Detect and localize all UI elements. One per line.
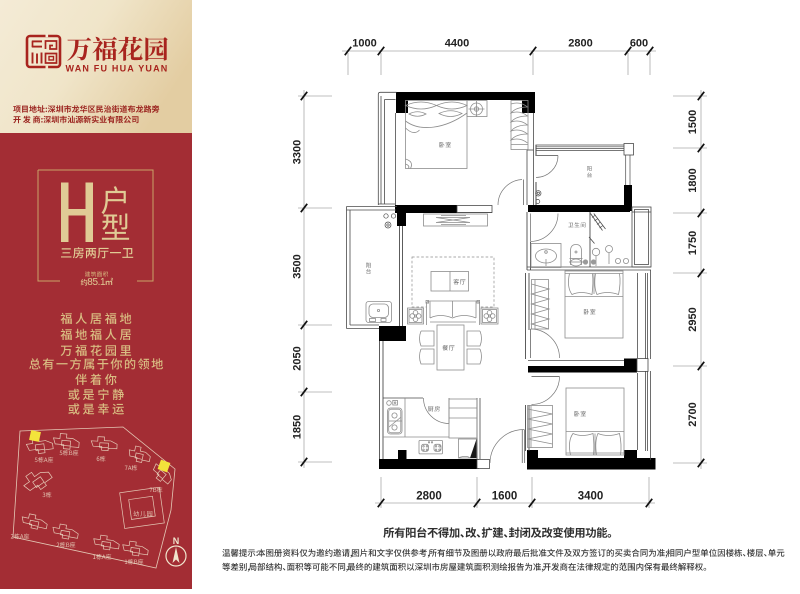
svg-text:WAN FU HUA YUAN: WAN FU HUA YUAN	[66, 64, 169, 74]
svg-text:3400: 3400	[578, 491, 604, 503]
svg-text:1850: 1850	[292, 415, 304, 439]
svg-text:2050: 2050	[292, 346, 304, 370]
svg-text:1800: 1800	[687, 168, 699, 192]
svg-text:1750: 1750	[687, 231, 699, 255]
svg-text:1500: 1500	[687, 110, 699, 134]
svg-text:600: 600	[630, 38, 648, 50]
svg-text:85.1: 85.1	[87, 277, 106, 288]
svg-text:1600: 1600	[492, 491, 518, 503]
svg-text:2800: 2800	[416, 491, 442, 503]
svg-text:2950: 2950	[687, 307, 699, 331]
svg-text:N: N	[173, 536, 180, 546]
svg-text:2800: 2800	[568, 38, 592, 50]
svg-text:4400: 4400	[445, 38, 469, 50]
svg-text:3300: 3300	[292, 140, 304, 164]
svg-text:2700: 2700	[687, 402, 699, 426]
svg-text:1000: 1000	[352, 38, 376, 50]
svg-text:3500: 3500	[292, 254, 304, 278]
